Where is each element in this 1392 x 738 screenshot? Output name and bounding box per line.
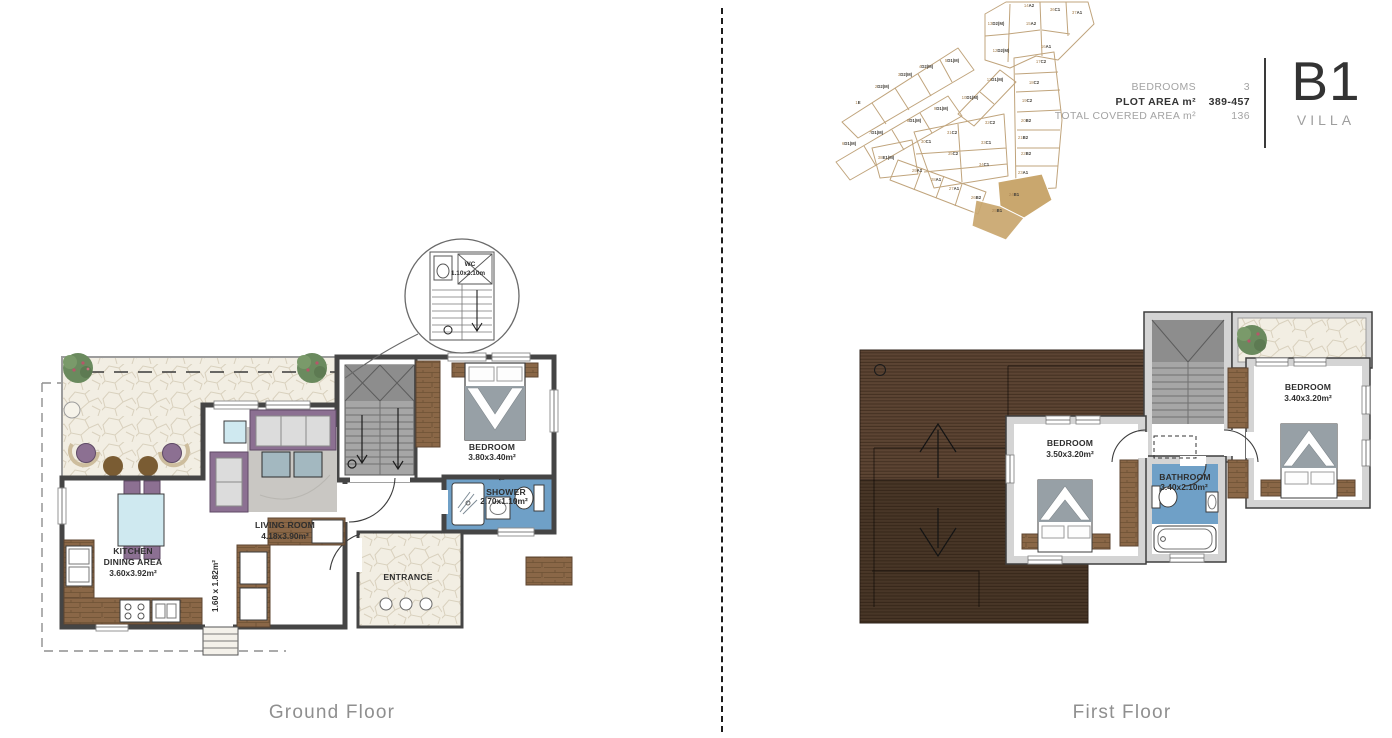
plot-label-7D1(M): 7D1(M) (869, 130, 884, 135)
ff-bedroom1-wardrobe (1120, 460, 1138, 546)
plot-label-23A1: 23A1 (1018, 170, 1029, 175)
plot-label-38E1(M): 38E1(M) (878, 155, 895, 160)
coffee-table-1 (262, 452, 290, 477)
ground-floor-title: Ground Floor (222, 702, 442, 724)
side-table (224, 421, 246, 443)
shower-dims: 2.70x1.10m² (480, 496, 528, 506)
plot-label-16A1: 16A1 (1041, 44, 1052, 49)
stair-landing (1152, 424, 1224, 458)
plot-label-4D2(M): 4D2(M) (919, 64, 934, 69)
kitchen-appliance (152, 600, 180, 622)
plot-label-33C1: 33C1 (981, 140, 992, 145)
living-room-furniture (210, 410, 337, 512)
kitchen-sink (66, 546, 92, 586)
ff-bedroom2-dims: 3.40x3.20m² (1284, 393, 1332, 403)
unit-code: B1 (1280, 54, 1372, 109)
ff-bedroom2 (1246, 358, 1370, 508)
kitchen-label-2: DINING AREA (104, 557, 163, 567)
plot-label-14A2: 14A2 (1024, 3, 1035, 8)
ground-floor-plan: ← (0, 230, 600, 670)
plot-label-36C1: 36C1 (1050, 7, 1061, 12)
spec-label: PLOT AREA m² (1116, 95, 1196, 110)
sofa (250, 410, 336, 450)
plot-label-25B1: 25B1 (992, 208, 1003, 213)
sheet-divider-line (721, 8, 723, 732)
balcony-plant (1237, 325, 1267, 355)
spec-row-plot-area: PLOT AREA m² 389-457 (1012, 95, 1250, 110)
plot-label-31C2: 31C2 (947, 130, 958, 135)
first-floor-title: First Floor (1012, 702, 1232, 724)
plot-label-6D1(M): 6D1(M) (842, 141, 857, 146)
spec-value: 389-457 (1196, 95, 1250, 110)
terrace-light (64, 402, 80, 418)
plot-label-32C2: 32C2 (985, 120, 996, 125)
plot-label-12D2(M): 12D2(M) (993, 48, 1010, 53)
bathroom-label: BATHROOM (1159, 472, 1211, 482)
hall-dims: 1.60 x 1.82m² (210, 560, 220, 612)
plot-label-15A2: 15A2 (1026, 21, 1037, 26)
spec-value: 136 (1196, 109, 1250, 124)
plot-label-2D2(M): 2D2(M) (875, 84, 890, 89)
plot-label-24B1: 24B1 (1009, 192, 1020, 197)
plot-label-11D1(M): 11D1(M) (987, 77, 1004, 82)
plot-label-3D2(M): 3D2(M) (898, 72, 913, 77)
entrance-label: ENTRANCE (383, 572, 432, 582)
kitchen-dims: 3.60x3.92m² (109, 568, 157, 578)
ff-bedroom1-label: BEDROOM (1047, 438, 1093, 448)
floorplan-sheet: 1E2D2(M)3D2(M)4D2(M)5D1(M)6D1(M)7D1(M)8D… (0, 0, 1392, 738)
terrace-plant-right (297, 353, 327, 383)
plot-label-5D1(M): 5D1(M) (945, 58, 960, 63)
spec-value: 3 (1196, 80, 1250, 95)
hall-wardrobe-1 (1228, 368, 1248, 428)
highlighted-plots (972, 174, 1052, 240)
plot-label-37A1: 37A1 (1072, 10, 1083, 15)
bathtub (1154, 526, 1216, 552)
gf-bedroom-bed (452, 363, 538, 440)
stair-wardrobe (416, 361, 440, 447)
wc-dims: 1.10x2.10m (451, 270, 485, 277)
spec-divider-line (1264, 58, 1266, 148)
wc-label: WC (465, 261, 476, 268)
shower-entry-arrow: ← (497, 473, 506, 483)
ff-bedroom1-bed (1038, 480, 1092, 552)
ff-bedroom1-dims: 3.50x3.20m² (1046, 449, 1094, 459)
unit-subtitle: VILLA (1280, 112, 1372, 128)
exterior-steps (203, 627, 238, 655)
ff-bedroom2-bed (1281, 424, 1337, 498)
kitchen-label-1: KITCHEN (113, 546, 153, 556)
plot-label-35C2: 35C2 (948, 151, 959, 156)
plot-label-29A1: 29A1 (912, 168, 923, 173)
gf-bedroom-dims: 3.80x3.40m² (468, 452, 516, 462)
plot-label-22B2: 22B2 (1021, 151, 1032, 156)
unit-title: B1 VILLA (1280, 54, 1372, 128)
hall-wardrobe-2 (1228, 460, 1248, 498)
plot-label-1E: 1E (855, 100, 860, 105)
plot-label-17C2: 17C2 (1036, 59, 1047, 64)
plot-label-28A1: 28A1 (931, 177, 942, 182)
terrace-side-table-right (138, 456, 158, 476)
spec-label: TOTAL COVERED AREA m² (1055, 109, 1196, 124)
plot-label-10D1(M): 10D1(M) (962, 95, 979, 100)
spec-label: BEDROOMS (1132, 80, 1196, 95)
ff-staircase (1144, 312, 1232, 462)
terrace-side-table-left (103, 456, 123, 476)
gf-bedroom-label: BEDROOM (469, 442, 515, 452)
ff-washbasin (1206, 492, 1218, 512)
plot-label-8D1(M): 8D1(M) (907, 118, 922, 123)
plot-label-30C1: 30C1 (921, 139, 932, 144)
entrance-detail (380, 598, 432, 610)
plot-label-21B2: 21B2 (1018, 135, 1029, 140)
plot-label-27A1: 27A1 (949, 186, 960, 191)
bathroom-dims: 3.40x2.10m² (1160, 482, 1208, 492)
first-floor-plan: BEDROOM 3.50x3.20m² BEDROOM 3.40x3.20m² … (840, 300, 1392, 630)
living-dims: 4.18x3.90m² (261, 531, 309, 541)
ff-bedroom2-label: BEDROOM (1285, 382, 1331, 392)
spec-row-bedrooms: BEDROOMS 3 (1012, 80, 1250, 95)
plot-label-26B2: 26B2 (971, 195, 982, 200)
dishwasher (312, 520, 343, 543)
side-deck (526, 557, 572, 585)
plot-label-9D1(M): 9D1(M) (934, 106, 949, 111)
unit-specs: BEDROOMS 3 PLOT AREA m² 389-457 TOTAL CO… (1012, 80, 1250, 124)
stove (120, 600, 150, 622)
plot-label-13D2(M): 13D2(M) (988, 21, 1005, 26)
living-label: LIVING ROOM (255, 520, 315, 530)
spec-row-covered-area: TOTAL COVERED AREA m² 136 (1012, 109, 1250, 124)
terrace-plant-left (63, 353, 93, 383)
coffee-table-2 (294, 452, 322, 477)
plot-label-34C1: 34C1 (979, 162, 990, 167)
loveseat (210, 452, 248, 512)
